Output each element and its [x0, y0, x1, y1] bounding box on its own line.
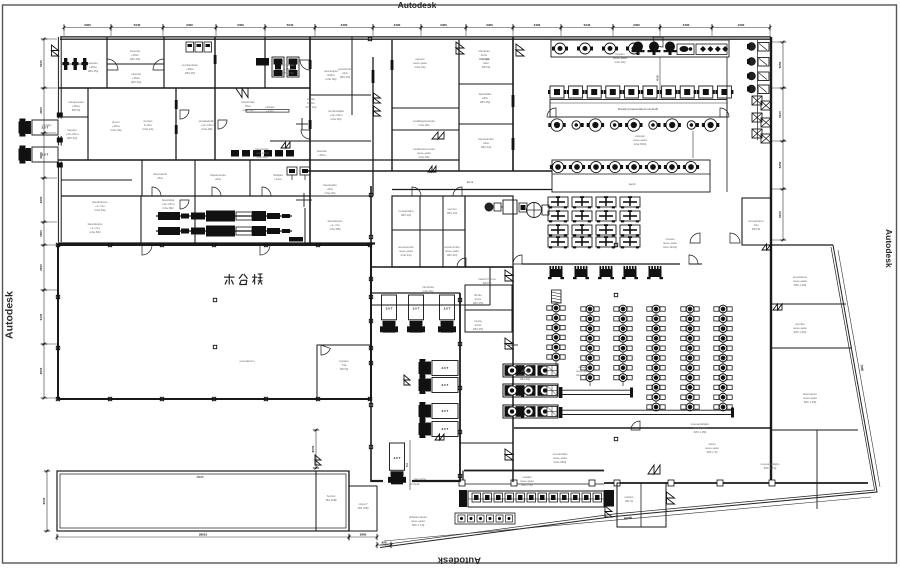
svg-text:483.15ji: 483.15ji [88, 69, 98, 73]
svg-text:3.0 T: 3.0 T [442, 366, 449, 370]
svg-text:luhe:90ji: luhe:90ji [163, 206, 174, 210]
svg-text:luhe:42ji: luhe:42ji [615, 60, 626, 64]
svg-text:+25xu: +25xu [318, 153, 326, 157]
svg-text:1000: 1000 [738, 23, 745, 27]
svg-text:483.15ji: 483.15ji [131, 80, 141, 84]
svg-text:koheta: koheta [411, 482, 420, 486]
svg-text:481.228ji: 481.228ji [325, 498, 337, 502]
svg-text:luhe:180ji: luhe:180ji [554, 460, 567, 464]
svg-text:Autodesk: Autodesk [437, 555, 481, 566]
svg-text:5100: 5100 [39, 313, 43, 320]
svg-text:483.5ji: 483.5ji [340, 367, 349, 371]
svg-text:5100: 5100 [39, 60, 43, 67]
svg-text:6000: 6000 [311, 445, 315, 452]
svg-text:luhe:40ji: luhe:40ji [325, 191, 336, 195]
svg-text:481.5ji: 481.5ji [625, 499, 633, 503]
svg-text:3400: 3400 [186, 23, 193, 27]
svg-text:3.0 T: 3.0 T [442, 383, 449, 387]
svg-text:luhe:26ji: luhe:26ji [419, 155, 430, 159]
svg-text:3.0 T: 3.0 T [386, 306, 393, 310]
svg-text:483.15ji: 483.15ji [185, 71, 195, 75]
svg-text:Autodesk: Autodesk [884, 229, 894, 268]
svg-text:luhe:1123ji: luhe:1123ji [663, 245, 677, 249]
svg-text:483.1.5ji: 483.1.5ji [522, 483, 533, 487]
svg-text:3.0 T: 3.0 T [442, 427, 449, 431]
svg-text:483.12ji: 483.12ji [401, 213, 411, 217]
svg-text:3.0 T: 3.0 T [413, 306, 420, 310]
svg-text:luhe:38ji: luhe:38ji [330, 227, 341, 231]
svg-text:+8xu: +8xu [215, 177, 222, 181]
svg-text:3.0 T: 3.0 T [442, 409, 449, 413]
svg-text:5100: 5100 [778, 211, 782, 218]
svg-text:3.0 T: 3.0 T [42, 153, 49, 157]
svg-text:luhe:34ji: luhe:34ji [111, 128, 122, 132]
svg-text:483.5ji: 483.5ji [483, 281, 492, 285]
svg-text:luhe:600ji: luhe:600ji [634, 142, 647, 146]
svg-text:28915: 28915 [196, 475, 204, 479]
svg-text:483.1.5ji: 483.1.5ji [707, 450, 718, 454]
svg-text:+12xu: +12xu [266, 109, 274, 113]
svg-text:483.1.35ji: 483.1.35ji [794, 283, 807, 287]
svg-text:66000: 66000 [624, 516, 633, 521]
svg-text:1500: 1500 [39, 230, 43, 237]
svg-text:3.0 T: 3.0 T [394, 456, 401, 460]
svg-text:3300: 3300 [39, 196, 43, 203]
svg-text:3900: 3900 [39, 367, 43, 374]
svg-text:5250: 5250 [778, 161, 782, 168]
svg-text:483.15ji: 483.15ji [130, 57, 140, 61]
svg-text:3300: 3300 [39, 264, 43, 271]
svg-text:483.5ji: 483.5ji [72, 108, 81, 112]
svg-text:3.0 T: 3.0 T [444, 306, 451, 310]
svg-text:luhe:84ji: luhe:84ji [243, 108, 254, 112]
svg-text:3400: 3400 [84, 23, 91, 27]
svg-text:483.12ji: 483.12ji [67, 136, 77, 140]
svg-text:900: 900 [405, 462, 409, 467]
svg-text:3400: 3400 [534, 23, 541, 27]
svg-text:6000: 6000 [42, 497, 46, 504]
svg-text:liheqili+(ropecedaluxumiceluli: liheqili+(ropecedaluxumiceluli) [618, 107, 658, 111]
svg-text:pesutakomi: pesutakomi [240, 359, 255, 363]
svg-text:483.12ji: 483.12ji [447, 211, 457, 215]
svg-text:3400: 3400 [237, 23, 244, 27]
svg-text:roluxu?: roluxu? [359, 502, 368, 506]
svg-text:483.1.35ji: 483.1.35ji [804, 400, 817, 404]
svg-text:900: 900 [381, 541, 386, 545]
svg-text:483.1.74ji: 483.1.74ji [764, 466, 777, 470]
svg-text:luhe:42ji: luhe:42ji [415, 65, 426, 69]
svg-text:luhe:26ji: luhe:26ji [419, 123, 430, 127]
svg-text:luhe:12ji: luhe:12ji [306, 105, 317, 109]
svg-text:483.5ji: 483.5ji [752, 227, 761, 231]
svg-text:3400: 3400 [440, 23, 447, 27]
svg-text:luhe:40ji: luhe:40ji [331, 117, 342, 121]
svg-text:luhe:80ji: luhe:80ji [257, 155, 268, 159]
svg-text:3400: 3400 [341, 23, 348, 27]
svg-text:483.30ji: 483.30ji [520, 377, 530, 381]
svg-text:483.1.35ji: 483.1.35ji [694, 430, 707, 434]
svg-text:4500: 4500 [656, 74, 660, 81]
svg-text:3400: 3400 [683, 23, 690, 27]
svg-text:+12xu: +12xu [274, 177, 282, 181]
svg-text:dami kohe: dami kohe [414, 477, 427, 481]
svg-text:damijihe: damijihe [43, 124, 53, 127]
svg-text:pemi: pemi [629, 182, 636, 186]
svg-text:+8xu: +8xu [157, 176, 164, 180]
svg-text:483.15ji: 483.15ji [340, 75, 350, 79]
svg-text:483.128ji: 483.128ji [358, 506, 369, 510]
svg-text:5243: 5243 [287, 23, 294, 27]
svg-text:luhe:64ji: luhe:64ji [90, 230, 101, 234]
svg-text:5250: 5250 [778, 61, 782, 68]
svg-text:luhe:40ji: luhe:40ji [423, 289, 434, 293]
svg-text:3400: 3400 [486, 23, 493, 27]
svg-text:5240: 5240 [584, 23, 591, 27]
svg-text:483.15ji: 483.15ji [480, 100, 490, 104]
svg-text:luhe:40ji: luhe:40ji [326, 77, 337, 81]
svg-text:luhe:1123ji: luhe:1123ji [576, 373, 590, 377]
svg-text:483.12ji: 483.12ji [481, 145, 491, 149]
svg-text:luhe:28ji: luhe:28ji [202, 127, 213, 131]
svg-text:3400: 3400 [394, 23, 401, 27]
svg-text:28915: 28915 [199, 533, 208, 537]
svg-text:483.15ji: 483.15ji [473, 301, 483, 305]
svg-text:483.1.30ji: 483.1.30ji [794, 330, 807, 334]
svg-text:3400: 3400 [633, 23, 640, 27]
svg-text:luhe:12ji: luhe:12ji [401, 253, 412, 257]
svg-text:483.12ji: 483.12ji [447, 253, 457, 257]
svg-text:komi: komi [467, 180, 474, 184]
svg-text:luhe:64ji: luhe:64ji [95, 208, 106, 212]
svg-text:neboko: neboko [625, 495, 634, 499]
svg-text:3800: 3800 [360, 533, 367, 537]
svg-text:Autodesk: Autodesk [398, 0, 437, 10]
svg-text:luhe:12ji: luhe:12ji [143, 127, 154, 131]
svg-text:3300: 3300 [39, 107, 43, 114]
svg-text:Autodesk: Autodesk [4, 291, 16, 339]
svg-text:5240: 5240 [134, 23, 141, 27]
svg-text:483.1.74ji: 483.1.74ji [412, 523, 425, 527]
svg-text:483.1.5ji: 483.1.5ji [283, 71, 294, 75]
svg-text:483.5ji: 483.5ji [482, 65, 491, 69]
svg-text:483.15ji: 483.15ji [473, 327, 483, 331]
svg-text:5100: 5100 [778, 111, 782, 118]
